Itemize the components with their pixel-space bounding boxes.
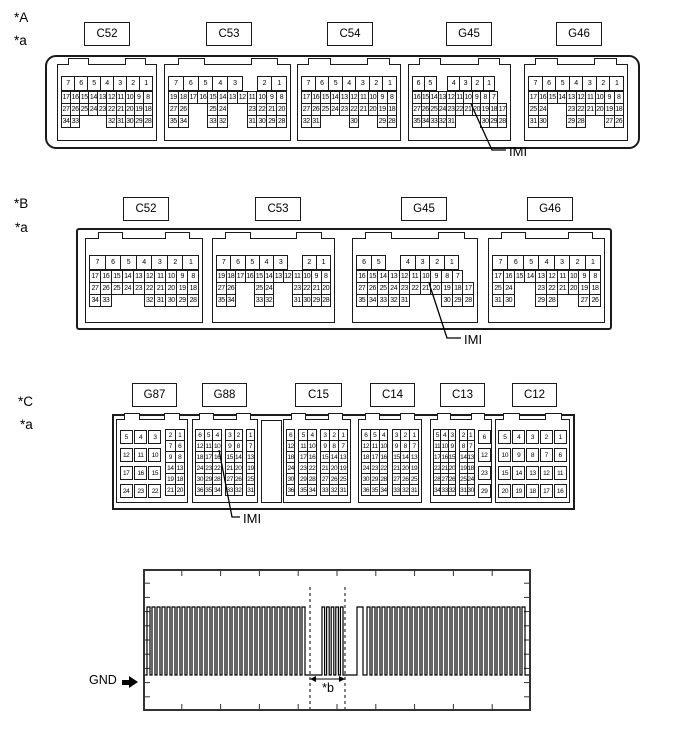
connector-label-box: G46 xyxy=(527,197,573,221)
pin-cell: 6 xyxy=(230,255,245,270)
pin-cell: 1 xyxy=(182,255,199,270)
pin-block: 32981514212027263332 xyxy=(225,429,243,499)
pin-block: 7654321171615141312111098252423222120191… xyxy=(492,255,601,312)
pin-cell: 30 xyxy=(538,115,549,128)
pin-cell: 26 xyxy=(589,294,601,307)
imi-pin-label-c: IMI xyxy=(243,511,261,526)
pin-cell: 3 xyxy=(113,76,127,91)
pin-cell: 24 xyxy=(120,484,133,498)
connector-b-c52: 7654321171615141312111098272625242322212… xyxy=(85,238,203,323)
pin-cell: 34 xyxy=(379,484,389,496)
pin-cell: 1 xyxy=(609,76,624,91)
section-c-label: *C xyxy=(18,394,33,409)
pin-cell: 3 xyxy=(273,255,288,270)
pin-cell: 5 xyxy=(371,255,387,270)
pin-cell: 5 xyxy=(198,76,214,91)
section-a-sublabel: *a xyxy=(14,33,27,48)
pin-cell: 31 xyxy=(338,484,348,496)
pin-cell: 28 xyxy=(546,294,558,307)
pin-block: 21871413191825243130 xyxy=(459,429,475,499)
pin-cell: 4 xyxy=(136,255,153,270)
pin-block: 321987151413212019272625333231 xyxy=(320,429,348,499)
pin-cell: 30 xyxy=(349,115,360,128)
pin-cell: 18 xyxy=(526,484,539,498)
connector-a-g46: 7654321171615141312111098252423222120191… xyxy=(524,64,628,141)
pin-cell: 4 xyxy=(569,76,584,91)
pin-block: 654121110181716242322302928363534 xyxy=(361,429,389,499)
pin-cell: 20 xyxy=(175,484,185,496)
pin-cell: 34 xyxy=(178,115,189,128)
pin-cell: 1 xyxy=(316,255,331,270)
empty-slot xyxy=(261,420,282,503)
pin-block: 1713192531 xyxy=(246,429,255,499)
pin-cell: 3 xyxy=(554,255,570,270)
pin-block: 54311109171615222120282726343332 xyxy=(433,429,456,499)
pin-cell: 36 xyxy=(286,484,295,496)
pin-cell: 6 xyxy=(554,448,567,462)
pin-cell: 11 xyxy=(554,466,567,480)
pin-block: 217698141319182120 xyxy=(165,429,185,499)
pin-cell: 10 xyxy=(148,448,161,462)
pin-cell: 10 xyxy=(498,448,511,462)
pin-cell: 1 xyxy=(139,76,153,91)
pin-cell: 4 xyxy=(212,76,228,91)
connector-label-box: C52 xyxy=(123,197,169,221)
connector-a-c53: 7654321191817161514131211109827262524232… xyxy=(164,64,291,141)
connector-a-g45: 6543211615141312111098727262524232221201… xyxy=(408,64,511,141)
pin-cell: 11 xyxy=(134,448,147,462)
pin-cell: 34 xyxy=(212,484,222,496)
pin-cell: 5 xyxy=(523,255,539,270)
pin-cell: 30 xyxy=(503,294,515,307)
pin-cell: 2 xyxy=(167,255,184,270)
pin-cell: 17 xyxy=(120,466,133,480)
pin-cell: 6 xyxy=(105,255,122,270)
connector-label-box: C15 xyxy=(295,383,342,407)
connector-label-box: G45 xyxy=(446,22,492,46)
pin-block: 5411101716232229283534 xyxy=(298,429,317,499)
pin-block: 7654321171615141312111098272625242322212… xyxy=(301,76,397,134)
connector-label-box: G46 xyxy=(556,22,602,46)
connector-label-box: C14 xyxy=(370,383,415,407)
pin-cell: 3 xyxy=(148,430,161,444)
pin-cell: 6 xyxy=(74,76,88,91)
pin-cell: 1 xyxy=(585,255,601,270)
connector-label-box: G87 xyxy=(132,383,177,407)
pin-cell: 6 xyxy=(478,430,491,444)
connector-b-g45: 6543211615141312111098727262524232221201… xyxy=(352,238,478,323)
connector-a-c52: 7654321171615141312111098272625242322212… xyxy=(57,64,157,141)
pin-cell: 12 xyxy=(540,466,553,480)
connector-a-c54: 7654321171615141312111098272625242322212… xyxy=(297,64,401,141)
pin-cell: 2 xyxy=(126,76,140,91)
connector-label-box: C53 xyxy=(206,22,252,46)
pin-cell: 28 xyxy=(143,115,153,128)
pin-cell: 32 xyxy=(234,484,244,496)
pin-cell: 3 xyxy=(526,430,539,444)
pin-cell: 2 xyxy=(569,255,585,270)
pin-cell: 28 xyxy=(497,115,507,128)
connector-label-box: C53 xyxy=(255,197,301,221)
pin-block: 543121110171615242322 xyxy=(119,429,162,499)
pin-cell: 33 xyxy=(70,115,80,128)
connector-c-c14: 6541211101817162423223029283635343219871… xyxy=(358,419,422,503)
pin-cell: 4 xyxy=(342,76,357,91)
pin-cell: 7 xyxy=(528,76,543,91)
connector-label-box: G88 xyxy=(202,383,247,407)
pin-cell: 34 xyxy=(307,484,317,496)
pin-cell: 28 xyxy=(387,115,398,128)
pin-cell: 29 xyxy=(478,484,491,498)
pin-cell: 15 xyxy=(148,466,161,480)
pin-cell: 9 xyxy=(512,448,525,462)
pin-cell: 2 xyxy=(429,255,445,270)
pin-block: 6122329 xyxy=(478,429,489,499)
pin-cell: 4 xyxy=(100,76,114,91)
pin-cell: 4 xyxy=(512,430,525,444)
pin-cell: 8 xyxy=(526,448,539,462)
pin-cell: 2 xyxy=(369,76,384,91)
pin-cell: 13 xyxy=(526,466,539,480)
pin-cell: 7 xyxy=(540,448,553,462)
pin-cell: 31 xyxy=(311,115,322,128)
pin-cell: 4 xyxy=(134,430,147,444)
pin-block: 7654321171615141312111098272625242322212… xyxy=(61,76,153,134)
pin-cell: 1 xyxy=(444,255,460,270)
pin-cell: 23 xyxy=(478,466,491,480)
section-b-label: *B xyxy=(14,196,28,211)
pin-cell: 2 xyxy=(302,255,317,270)
pin-cell: 28 xyxy=(321,294,332,307)
pin-cell: 6 xyxy=(356,255,372,270)
pin-cell: 20 xyxy=(498,484,511,498)
pin-block: 654121110181716242322302928363534 xyxy=(195,429,222,499)
pin-cell: 1 xyxy=(554,430,567,444)
connector-c-c12: 5432110987615141312112019181716 xyxy=(495,419,570,503)
pin-cell: 31 xyxy=(409,484,419,496)
connector-c-g88: 6541211101817162423223029283635343298151… xyxy=(192,419,258,503)
pin-cell: 12 xyxy=(478,448,491,462)
pin-block: 7654321191817161514131211109827262524232… xyxy=(216,255,331,312)
pin-block: 6543211615141312111098727262524232221201… xyxy=(412,76,507,134)
pin-cell: 4 xyxy=(538,255,554,270)
connector-c-c13: 5431110917161522212028272634333221871413… xyxy=(430,419,492,503)
pin-cell: 32 xyxy=(264,294,275,307)
pin-cell: 2 xyxy=(257,76,273,91)
pin-cell: 12 xyxy=(120,448,133,462)
connector-label-box: C12 xyxy=(512,383,557,407)
pin-cell: 17 xyxy=(540,484,553,498)
diagram-canvas: *A *a C52 C53 C54 G45 G46 76543211716151… xyxy=(0,0,688,755)
pin-cell: 28 xyxy=(462,294,474,307)
connector-c-g87: 543121110171615242322217698141319182120 xyxy=(116,419,188,503)
pin-cell: 34 xyxy=(226,294,237,307)
pin-cell: 4 xyxy=(259,255,274,270)
pin-cell: 6 xyxy=(315,76,330,91)
pin-cell: 31 xyxy=(399,294,411,307)
pin-cell: 28 xyxy=(276,115,287,128)
pin-cell: 22 xyxy=(148,484,161,498)
pin-cell: 5 xyxy=(328,76,343,91)
connector-label-box: C13 xyxy=(440,383,485,407)
pin-cell: 6 xyxy=(183,76,199,91)
pin-cell: 3 xyxy=(227,76,243,91)
section-b-sublabel: *a xyxy=(15,220,28,235)
connector-label-box: C52 xyxy=(84,22,130,46)
pin-cell: 7 xyxy=(216,255,231,270)
pin-cell: 33 xyxy=(100,294,112,307)
connector-label-box: G45 xyxy=(401,197,447,221)
pin-cell: 23 xyxy=(134,484,147,498)
connector-label-box: C54 xyxy=(327,22,373,46)
pin-cell: 32 xyxy=(217,115,228,128)
pin-block: 6543211615141312111098727262524232221201… xyxy=(356,255,474,312)
pin-cell: 28 xyxy=(576,115,587,128)
pin-cell: 5 xyxy=(87,76,101,91)
imi-pin-label-b: IMI xyxy=(464,332,482,347)
pin-cell: 5 xyxy=(120,430,133,444)
connector-b-g46: 7654321171615141312111098252423222120191… xyxy=(488,238,605,323)
pin-cell: 3 xyxy=(355,76,370,91)
pin-cell: 7 xyxy=(61,76,75,91)
imi-pin-label-a: IMI xyxy=(509,144,527,159)
pin-cell: 31 xyxy=(446,115,456,128)
pin-cell: 6 xyxy=(542,76,557,91)
pin-block: 7654321191817161514131211109827262524232… xyxy=(168,76,287,134)
pin-cell: 3 xyxy=(151,255,168,270)
pin-cell: 28 xyxy=(187,294,199,307)
pin-cell: 19 xyxy=(512,484,525,498)
pin-cell: 16 xyxy=(134,466,147,480)
pin-block: 7654321171615141312111098252423222120191… xyxy=(528,76,624,134)
pin-cell: 30 xyxy=(467,484,475,496)
pin-cell: 5 xyxy=(120,255,137,270)
pin-cell: 5 xyxy=(245,255,260,270)
pin-cell: 6 xyxy=(507,255,523,270)
pin-cell: 4 xyxy=(400,255,416,270)
pin-cell: 26 xyxy=(614,115,625,128)
pin-cell: 31 xyxy=(246,484,255,496)
connector-b-c53: 7654321191817161514131211109827262524232… xyxy=(212,238,335,323)
pin-cell: 5 xyxy=(498,430,511,444)
pin-cell: 1 xyxy=(382,76,397,91)
pin-cell: 7 xyxy=(168,76,184,91)
pin-cell: 16 xyxy=(554,484,567,498)
pin-cell: 32 xyxy=(448,484,456,496)
pin-cell: 5 xyxy=(424,76,437,91)
pin-cell: 1 xyxy=(483,76,496,91)
pin-block: 5432110987615141312112019181716 xyxy=(498,429,567,499)
gnd-arrow-icon xyxy=(122,676,139,688)
connector-c-c15: 6121824303654111017162322292835343219871… xyxy=(283,419,351,503)
pin-block: 7654321171615141312111098272625242322212… xyxy=(89,255,199,312)
pin-block: 61218243036 xyxy=(286,429,295,499)
pin-cell: 7 xyxy=(301,76,316,91)
pin-cell: 2 xyxy=(596,76,611,91)
gnd-label: GND xyxy=(89,673,117,687)
pin-cell: 2 xyxy=(540,430,553,444)
pin-cell: 5 xyxy=(555,76,570,91)
pin-cell: 3 xyxy=(582,76,597,91)
gap-width-label: *b xyxy=(311,681,345,695)
pin-cell: 15 xyxy=(498,466,511,480)
section-c-sublabel: *a xyxy=(20,417,33,432)
pin-cell: 7 xyxy=(89,255,106,270)
section-a-label: *A xyxy=(14,10,28,25)
pin-cell: 14 xyxy=(512,466,525,480)
pin-cell: 3 xyxy=(415,255,431,270)
pin-cell: 1 xyxy=(271,76,287,91)
pin-block: 321987151413212019272625333231 xyxy=(392,429,420,499)
pin-cell: 7 xyxy=(492,255,508,270)
